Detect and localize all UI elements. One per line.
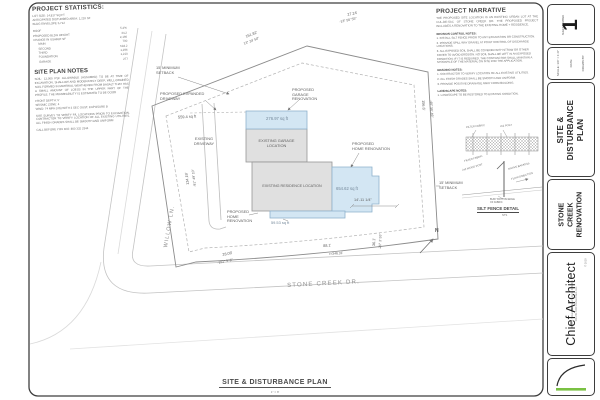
dim-right-length: 156.6' [421,100,426,110]
grading-note-item: 3. PROVIDE POSITIVE DRAINAGE AWAY FROM B… [437,81,539,87]
scale-field: SCALE: 1/4" = 1'-0" [555,50,561,76]
existing-driveway-label: EXISTING DRIVEWAY [191,137,217,146]
dim-lower-right-length: 36.1' [372,238,376,246]
setback-label-right: 15' MINIMUM SETBACK [439,181,463,190]
brand-box: 6500 N. Mineral Dr. Coeur d'Alene, ID 83… [547,252,595,356]
project-title: STONE CREEK RENOVATION [557,192,584,238]
garage-addition-area-value: 276.97 sq ft [256,116,298,121]
driveway-area-value: 559.4 sq ft [178,115,196,121]
home-addition-area-value: 654.62 sq ft [336,186,358,191]
project-statistics-panel: PROJECT STATISTICS: LOT SIZE: 14,817 SQ … [32,3,130,135]
proposed-home-renovation-label-right: PROPOSED HOME RENOVATION [352,142,390,151]
drawn-by-field: DRAWN BY: [580,50,586,76]
brand-wordmark: Chief Architect [564,262,578,346]
stat-label: GARAGE [39,59,52,64]
sheet-number-box: SHEET NUMBER 1 [547,4,595,45]
sheet-title-box: SITE & DISTURBANCE PLAN [547,82,595,177]
notes-paragraph: CALL BEFORE YOU DIG: 800 332 2344 [36,125,130,132]
chief-architect-logo-icon [549,360,593,394]
narrative-intro: THE PROPOSED SITE LOCATION IS AN EXISTIN… [436,15,538,29]
drawing-sheet: PROJECT STATISTICS: LOT SIZE: 14,817 SQ … [0,0,600,400]
dim-addition-width: 14'-11 1/4" [354,198,372,202]
landscape-note-item: 1. LANDSCAPE TO BE RESTORED TO EXISTING … [438,93,540,99]
sheet-number-value: 1 [559,19,583,31]
sheet-caption-scale: 1" = 8' [195,390,355,394]
project-narrative-panel: PROJECT NARRATIVE THE PROPOSED SITE LOCA… [436,6,540,99]
existing-garage-label: EXISTING GARAGE LOCATION [248,139,305,148]
silt-fence-detail-caption: SILT FENCE DETAIL [477,206,519,213]
sheet-caption: SITE & DISTURBANCE PLAN 1" = 8' [195,371,355,394]
silt-fence-detail-scale: NTS [502,214,507,217]
proposed-home-renovation-label-bottom: PROPOSED HOME RENOVATION [227,210,252,224]
logo-box [547,358,595,396]
erosion-note-item: 3. ALL EXPOSED SOIL SHALL BE COVERED WIT… [437,48,539,65]
setback-label-left: 15' MINIMUM SETBACK [156,66,180,75]
home-bottom-area-value: 59.53 sq ft [271,221,289,226]
sheet-title: SITE & DISTURBANCE PLAN [556,99,586,159]
stats-intro: LOT SIZE: 14,817 SQ FT ANTICIPATED DISTU… [32,12,126,27]
existing-residence-label: EXISTING RESIDENCE LOCATION [254,184,330,188]
notes-paragraph: FRONT DEPTH: 5' SEISMIC ZONE: 4 WIND: 74… [35,97,129,112]
proposed-expanded-driveway-label: PROPOSED EXPANDED DRIVEWAY [160,92,204,101]
notes-paragraph: SOIL: 12,000 PSF ALLOWABLE (ASSUMED) TO … [35,75,130,98]
scale-date-box: SCALE: 1/4" = 1'-0" DATE: DRAWN BY: [547,47,595,80]
dim-bottom-length: 88.1' [323,243,331,248]
silt-fence-bury-note: BURY BOTTOM EDGE OF FABRIC [490,198,515,204]
stat-value: 277 [110,56,128,61]
notes-paragraph: SITE SURVEY TO VERIFY P/L LOCATIONS PRIO… [36,111,130,126]
existing-driveway-lines [202,103,226,229]
proposed-home-addition-bottom [270,211,345,218]
north-arrow-label: N [435,228,439,234]
dim-lower-right-bearing: -26° 3' 55" [378,233,383,249]
sheet-caption-title: SITE & DISTURBANCE PLAN [219,379,331,388]
brand-copyright: © 2019 [584,258,587,266]
date-field: DATE: [568,50,574,76]
project-title-box: STONE CREEK RENOVATION [547,179,595,250]
proposed-garage-renovation-label: PROPOSED GARAGE RENOVATION [292,88,317,102]
